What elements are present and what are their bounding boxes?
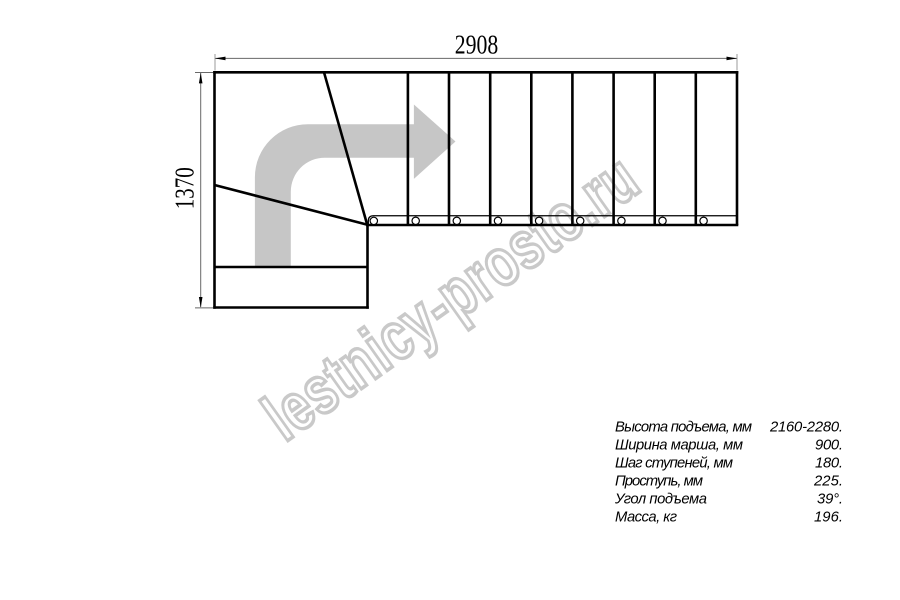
svg-text:Ширина марша, мм: Ширина марша, мм xyxy=(615,438,743,454)
svg-text:1370: 1370 xyxy=(170,167,200,209)
svg-text:2908: 2908 xyxy=(455,30,499,60)
svg-text:39°.: 39°. xyxy=(817,492,843,508)
svg-text:Угол подъема: Угол подъема xyxy=(614,492,707,508)
svg-text:196.: 196. xyxy=(814,510,843,526)
svg-text:180.: 180. xyxy=(815,456,843,472)
svg-text:2160-2280.: 2160-2280. xyxy=(769,420,843,436)
svg-text:225.: 225. xyxy=(813,474,843,490)
svg-text:Шаг ступеней, мм: Шаг ступеней, мм xyxy=(615,456,733,472)
svg-text:Проступь, мм: Проступь, мм xyxy=(615,474,703,490)
svg-text:Масса, кг: Масса, кг xyxy=(615,510,677,526)
svg-text:900.: 900. xyxy=(815,438,843,454)
svg-text:Высота подъема, мм: Высота подъема, мм xyxy=(615,420,752,436)
svg-text:lestnicy-prosto.ru: lestnicy-prosto.ru xyxy=(250,139,653,455)
